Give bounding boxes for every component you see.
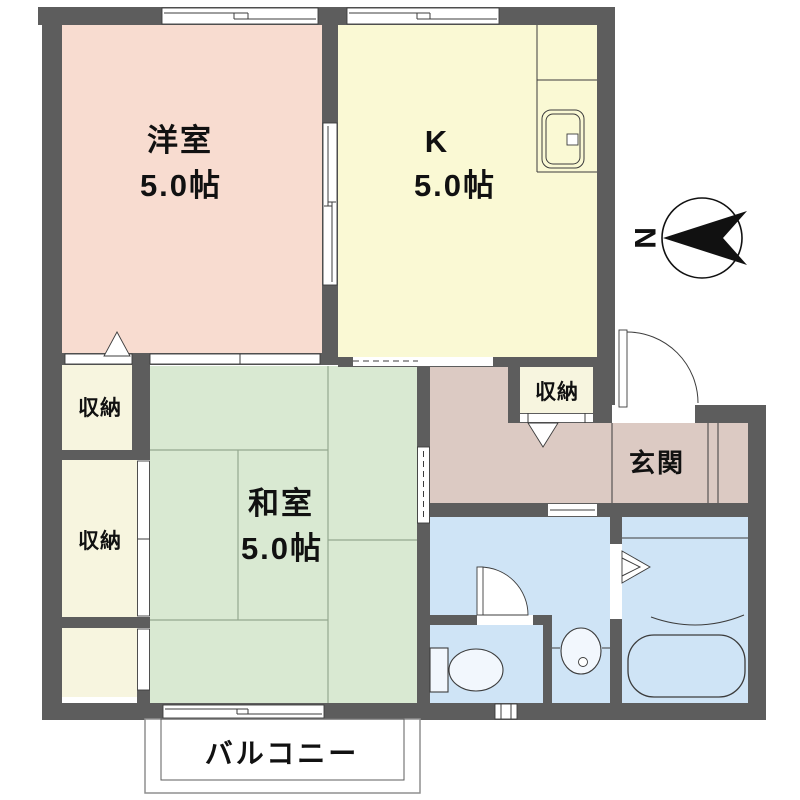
window-west-kitchen (323, 123, 337, 285)
wall-segment (543, 625, 552, 703)
toilet-tank-icon (430, 648, 448, 692)
toilet-bowl-icon (449, 649, 503, 691)
wall-segment (417, 615, 477, 625)
balcony-label: バルコニー (205, 738, 359, 769)
door-track (610, 544, 622, 551)
window-toilet (495, 704, 517, 719)
window-top-kitchen (347, 8, 499, 24)
entrance-doorway (612, 405, 695, 423)
fusuma-west-japanese (150, 354, 320, 364)
bathroom-door-opening (610, 551, 622, 612)
hall-closet-door-opening (520, 414, 593, 422)
toilet-door-opening (477, 615, 533, 625)
japanese-room-name: 和室 (248, 486, 314, 521)
floor-plan-drawing: N 洋室 5.0帖 K 5.0帖 和室 5.0帖 収納 収納 収納 玄関 バルコ… (0, 0, 800, 800)
wall-segment (42, 703, 766, 720)
closet-extra-fusuma (138, 629, 150, 690)
wall-segment (748, 405, 766, 720)
window-balcony (163, 705, 324, 718)
washbasin-icon (561, 628, 601, 674)
sink-drain-icon (567, 134, 578, 145)
wall-segment (137, 690, 150, 703)
closet-upper-label: 収納 (78, 396, 122, 420)
wall-segment (62, 617, 150, 628)
floor-plan: N 洋室 5.0帖 K 5.0帖 和室 5.0帖 収納 収納 収納 玄関 バルコ… (0, 0, 800, 800)
closet-lower-label: 収納 (78, 529, 122, 553)
wall-segment (132, 353, 150, 460)
japanese-room-area: 5.0帖 (241, 531, 323, 566)
wall-segment (593, 357, 600, 413)
wall-segment (417, 366, 430, 703)
kitchen-area: 5.0帖 (414, 168, 496, 203)
hall-closet-label: 収納 (535, 380, 579, 404)
entrance-door-swing-arc (627, 332, 698, 403)
western-room-name: 洋室 (147, 123, 213, 158)
entrance-label: 玄関 (629, 448, 685, 478)
bathroom-floor (622, 517, 748, 703)
kitchen-name: K (425, 124, 449, 159)
wall-segment (533, 615, 552, 625)
door-track (610, 612, 622, 619)
wall-segment (597, 7, 615, 413)
western-room-area: 5.0帖 (140, 168, 222, 203)
wall-segment (42, 7, 62, 720)
closet-extra-floor (62, 628, 137, 697)
entrance-door-leaf (619, 330, 627, 407)
north-arrow: N (628, 198, 747, 278)
hallway-floor-b (508, 423, 612, 503)
hallway-floor-a (430, 367, 508, 503)
toilet-door-leaf (477, 567, 483, 615)
window-top-west (162, 8, 318, 24)
compass-north-label: N (628, 227, 661, 249)
washbasin-drain-icon (579, 658, 588, 667)
